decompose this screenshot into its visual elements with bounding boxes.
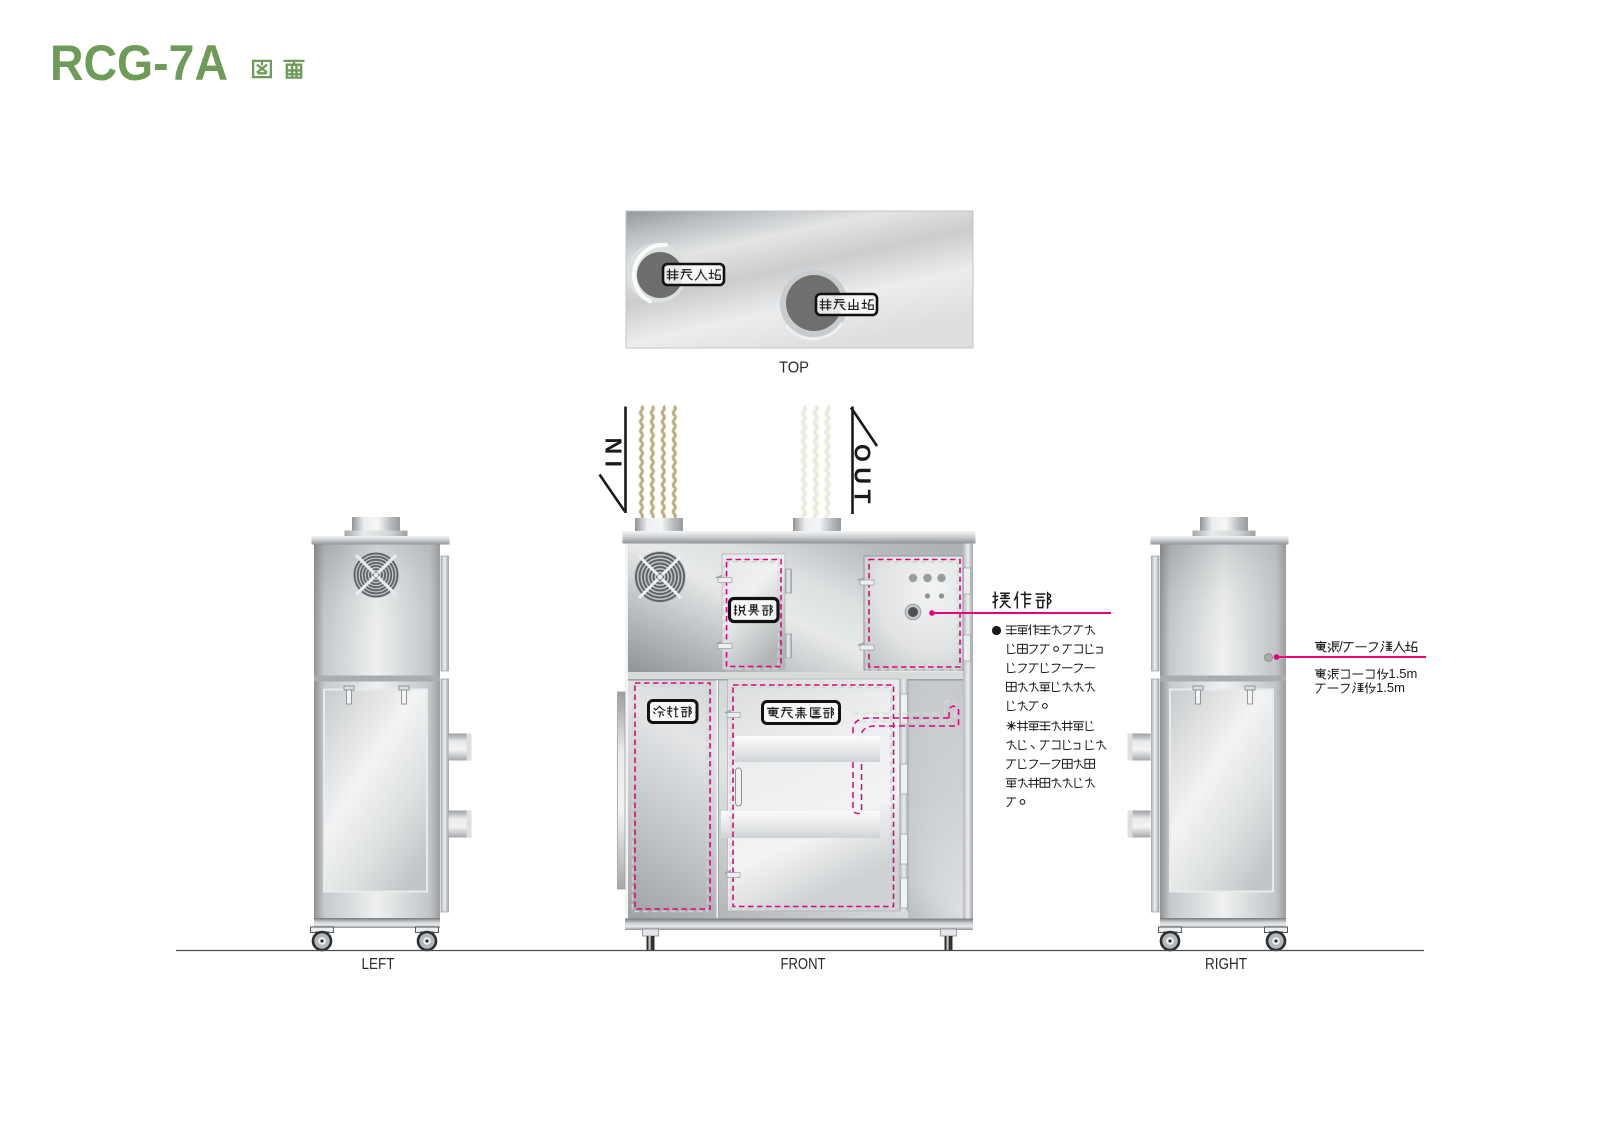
svg-text:/: /: [1339, 639, 1343, 654]
svg-text:LEFT: LEFT: [362, 956, 395, 973]
svg-text:1.5m: 1.5m: [1388, 666, 1417, 681]
svg-text:FRONT: FRONT: [781, 956, 826, 973]
svg-text:TOP: TOP: [779, 360, 809, 377]
svg-text:RCG-7A: RCG-7A: [50, 35, 228, 91]
svg-text:IN: IN: [601, 431, 627, 467]
svg-text:1.5m: 1.5m: [1376, 680, 1405, 695]
svg-text:OUT: OUT: [850, 444, 876, 509]
svg-text:RIGHT: RIGHT: [1205, 956, 1247, 973]
